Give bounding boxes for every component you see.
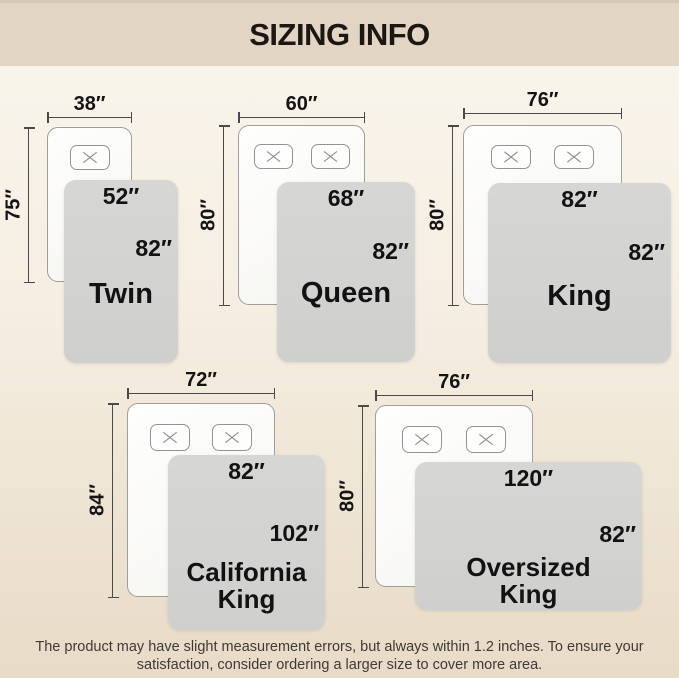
twin-width-measure: 38″ [47,95,132,118]
oversized-king-pillow-row [402,426,506,453]
queen-blanket-width-label: 68″ [277,185,415,212]
twin-length-label: 75″ [3,189,26,221]
queen-length-measure-line [223,125,224,305]
pillow-cross-icon [467,426,505,453]
twin-width-measure-line [47,117,132,118]
queen-width-measure-line [238,117,365,118]
queen-length-label: 80″ [198,199,221,231]
king-blanket-width-label: 82″ [488,186,671,213]
california-king-blanket-width-label: 82″ [168,458,325,485]
oversized-king-length-label: 80″ [337,480,360,512]
queen-size-name: Queen [277,278,415,308]
twin-width-label: 38″ [47,95,132,114]
oversized-king-blanket-width-label: 120″ [415,465,642,492]
king-width-measure-line [463,113,622,114]
twin-pillow-row [70,145,110,170]
king-length-label: 80″ [427,199,450,231]
california-king-length-measure-line [112,403,113,597]
king-size-name: King [488,281,671,311]
pillow [554,145,594,169]
twin-length-measure-line [28,127,29,282]
queen-blanket-length-label: 82″ [372,238,409,265]
king-length-measure-line [452,125,453,305]
pillow-cross-icon [151,424,189,451]
california-king-size-name: California King [168,559,325,613]
pillow-cross-icon [71,145,109,170]
king-blanket: 82″ 82″ King [488,183,671,363]
queen-blanket: 68″ 82″ Queen [277,182,415,362]
oversized-king-size-name: Oversized King [415,554,642,608]
california-king-size-name-line1: California [168,559,325,586]
california-king-width-label: 72″ [127,371,275,390]
pillow-cross-icon [312,144,349,169]
twin-blanket-width-label: 52″ [64,183,178,210]
oversized-king-length-measure-line [362,405,363,587]
disclaimer-text: The product may have slight measurement … [0,638,679,674]
page-title: SIZING INFO [249,17,430,53]
king-width-measure: 76″ [463,91,622,114]
disclaimer-line1: The product may have slight measurement … [0,638,679,656]
oversized-king-width-label: 76″ [375,373,533,392]
queen-width-label: 60″ [238,95,365,114]
california-king-width-measure-line [127,393,275,394]
pillow-cross-icon [492,145,530,169]
california-king-size-name-line2: King [168,586,325,613]
california-king-blanket: 82″ 102″ California King [168,455,325,630]
queen-pillow-row [254,144,350,169]
pillow [402,426,442,453]
pillow-cross-icon [555,145,593,169]
sizing-info-diagram: SIZING INFO 38″ 75″ 52″ 82″ Twin 60″ 80″ [0,0,679,678]
oversized-king-blanket: 120″ 82″ Oversized King [415,462,642,610]
pillow-cross-icon [255,144,292,169]
pillow-cross-icon [403,426,441,453]
king-width-label: 76″ [463,91,622,110]
king-pillow-row [491,145,594,169]
pillow [491,145,531,169]
oversized-king-blanket-length-label: 82″ [599,521,636,548]
pillow [70,145,110,170]
pillow [150,424,190,451]
disclaimer-line2: satisfaction, consider ordering a larger… [0,656,679,674]
twin-blanket: 52″ 82″ Twin [64,180,178,363]
header-band: SIZING INFO [0,0,679,66]
oversized-king-width-measure-line [375,395,533,396]
oversized-king-width-measure: 76″ [375,373,533,396]
pillow [212,424,252,451]
twin-size-name: Twin [64,279,178,309]
california-king-blanket-length-label: 102″ [270,520,319,547]
king-blanket-length-label: 82″ [628,239,665,266]
oversized-king-size-name-line2: King [415,581,642,608]
queen-width-measure: 60″ [238,95,365,118]
california-king-width-measure: 72″ [127,371,275,394]
california-king-length-label: 84″ [87,484,110,516]
twin-blanket-length-label: 82″ [135,235,172,262]
california-king-pillow-row [150,424,252,451]
pillow [254,144,293,169]
oversized-king-size-name-line1: Oversized [415,554,642,581]
pillow-cross-icon [213,424,251,451]
pillow [311,144,350,169]
pillow [466,426,506,453]
